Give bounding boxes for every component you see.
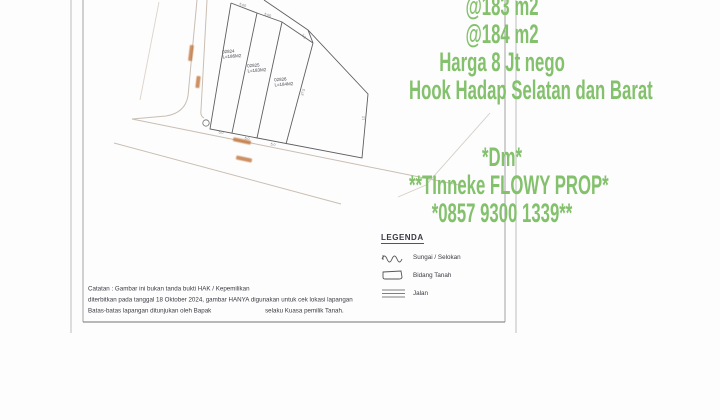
legend-item-bidang-tanah: Bidang Tanah — [381, 269, 481, 281]
area-line-2: @184 m2 — [409, 20, 595, 48]
dimension-label: 12 — [361, 116, 365, 120]
note-line-2: diterbitkan pada tanggal 18 Oktober 2024… — [88, 296, 353, 303]
drain-line — [140, 2, 159, 100]
phone-line: *0857 9300 1339** — [409, 199, 595, 227]
plot-label-1: 02824 L=186M2 — [222, 49, 241, 60]
price-line: Harga 8 Jt nego — [409, 48, 595, 76]
orientation-line: Hook Hadap Selatan dan Barat — [409, 76, 595, 104]
road-inner-edge — [201, 0, 207, 118]
plot-label-2: 02825 L=183M2 — [247, 63, 266, 74]
wavy-line-icon — [381, 251, 407, 263]
plot-top-edges — [231, 3, 313, 43]
listing-image: 02824 L=186M2 02825 L=183M2 02826 L=184M… — [0, 0, 720, 420]
area-line-1: @183 m2 — [409, 0, 595, 20]
agent-name-line: **TInneke FLOWY PROP* — [409, 171, 595, 199]
legend: LEGENDA Sungai / Selokan Bidang Tanah Ja… — [381, 227, 481, 299]
legend-label: Bidang Tanah — [413, 272, 451, 279]
dimension-label: 5.0 — [270, 142, 276, 147]
listing-contact-text: *Dm* **TInneke FLOWY PROP* *0857 9300 13… — [352, 143, 652, 227]
legend-label: Sungai / Selokan — [413, 254, 461, 261]
plot-label-3: 02826 L=184M2 — [274, 77, 293, 88]
legend-item-jalan: Jalan — [381, 287, 481, 299]
note-line-1: Catatan : Gambar ini bukan tanda bukti H… — [88, 285, 250, 292]
legend-item-sungai: Sungai / Selokan — [381, 251, 481, 263]
road-lines-icon — [381, 287, 407, 299]
dimension-label: 5.0 — [218, 130, 224, 135]
listing-header-text: @183 m2 @184 m2 Harga 8 Jt nego Hook Had… — [352, 0, 652, 104]
note-line-3-left: Batas-batas lapangan ditunjukan oleh Bap… — [88, 307, 211, 314]
road-far-edge — [114, 143, 341, 204]
note-line-3-right: selaku Kuasa pemilik Tanah. — [265, 307, 344, 314]
legend-label: Jalan — [413, 290, 428, 297]
parcel-outline-icon — [381, 269, 407, 281]
corner-marker — [203, 120, 209, 126]
dm-line: *Dm* — [409, 143, 595, 171]
note-line-3: Batas-batas lapangan ditunjukan oleh Bap… — [88, 307, 344, 314]
legend-title: LEGENDA — [381, 233, 424, 244]
